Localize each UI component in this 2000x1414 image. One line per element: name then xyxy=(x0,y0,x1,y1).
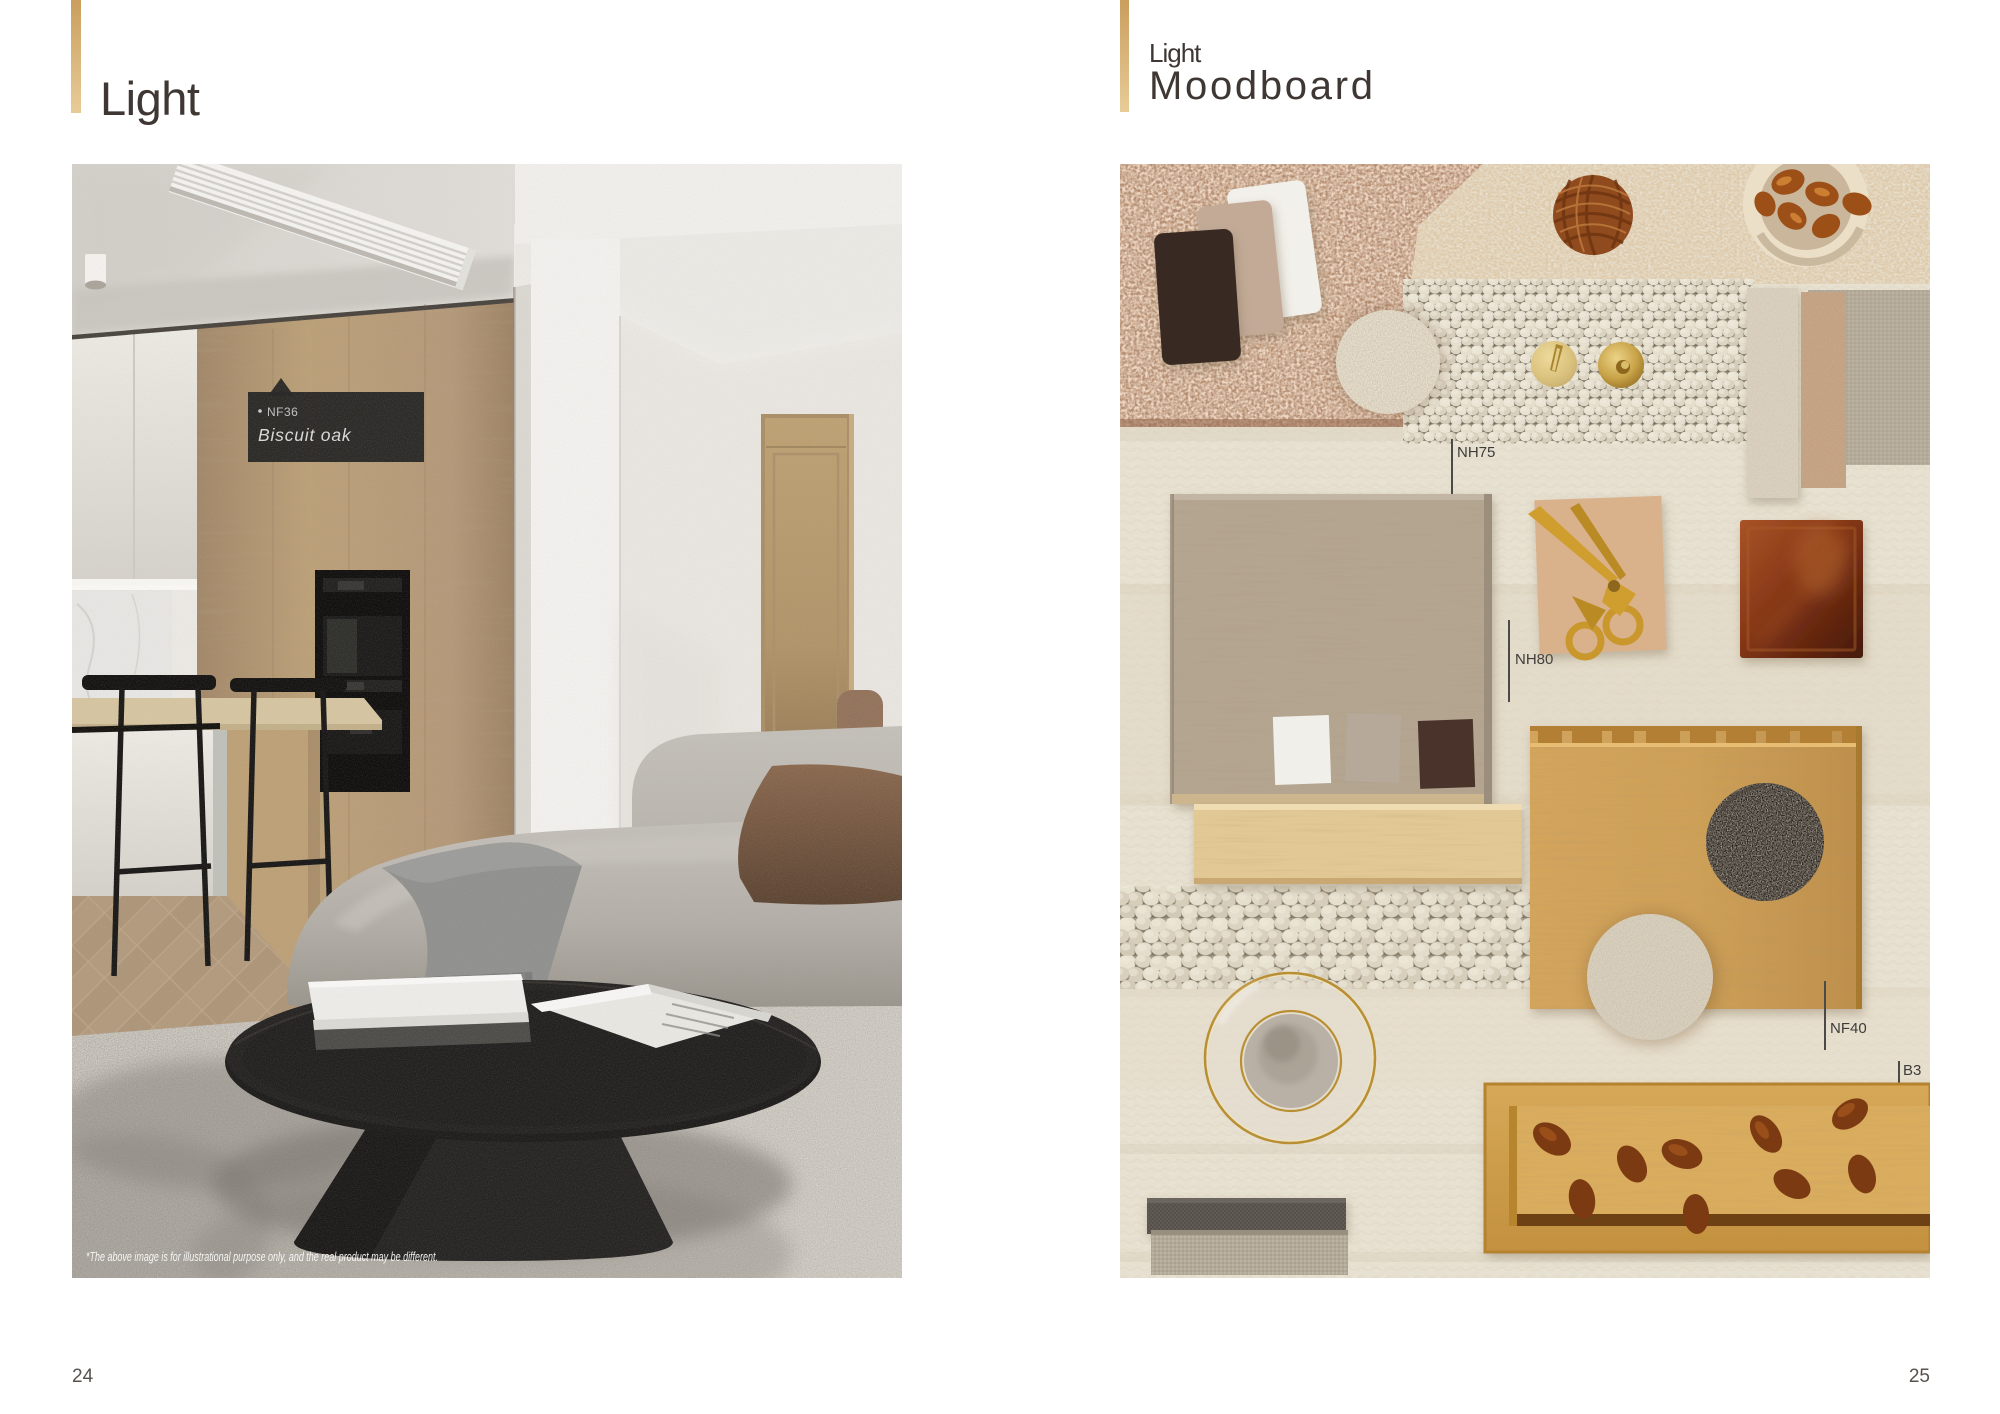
svg-text:NF40: NF40 xyxy=(1830,1020,1867,1037)
svg-text:B3: B3 xyxy=(1903,1062,1921,1079)
svg-text:NH75: NH75 xyxy=(1457,444,1495,461)
